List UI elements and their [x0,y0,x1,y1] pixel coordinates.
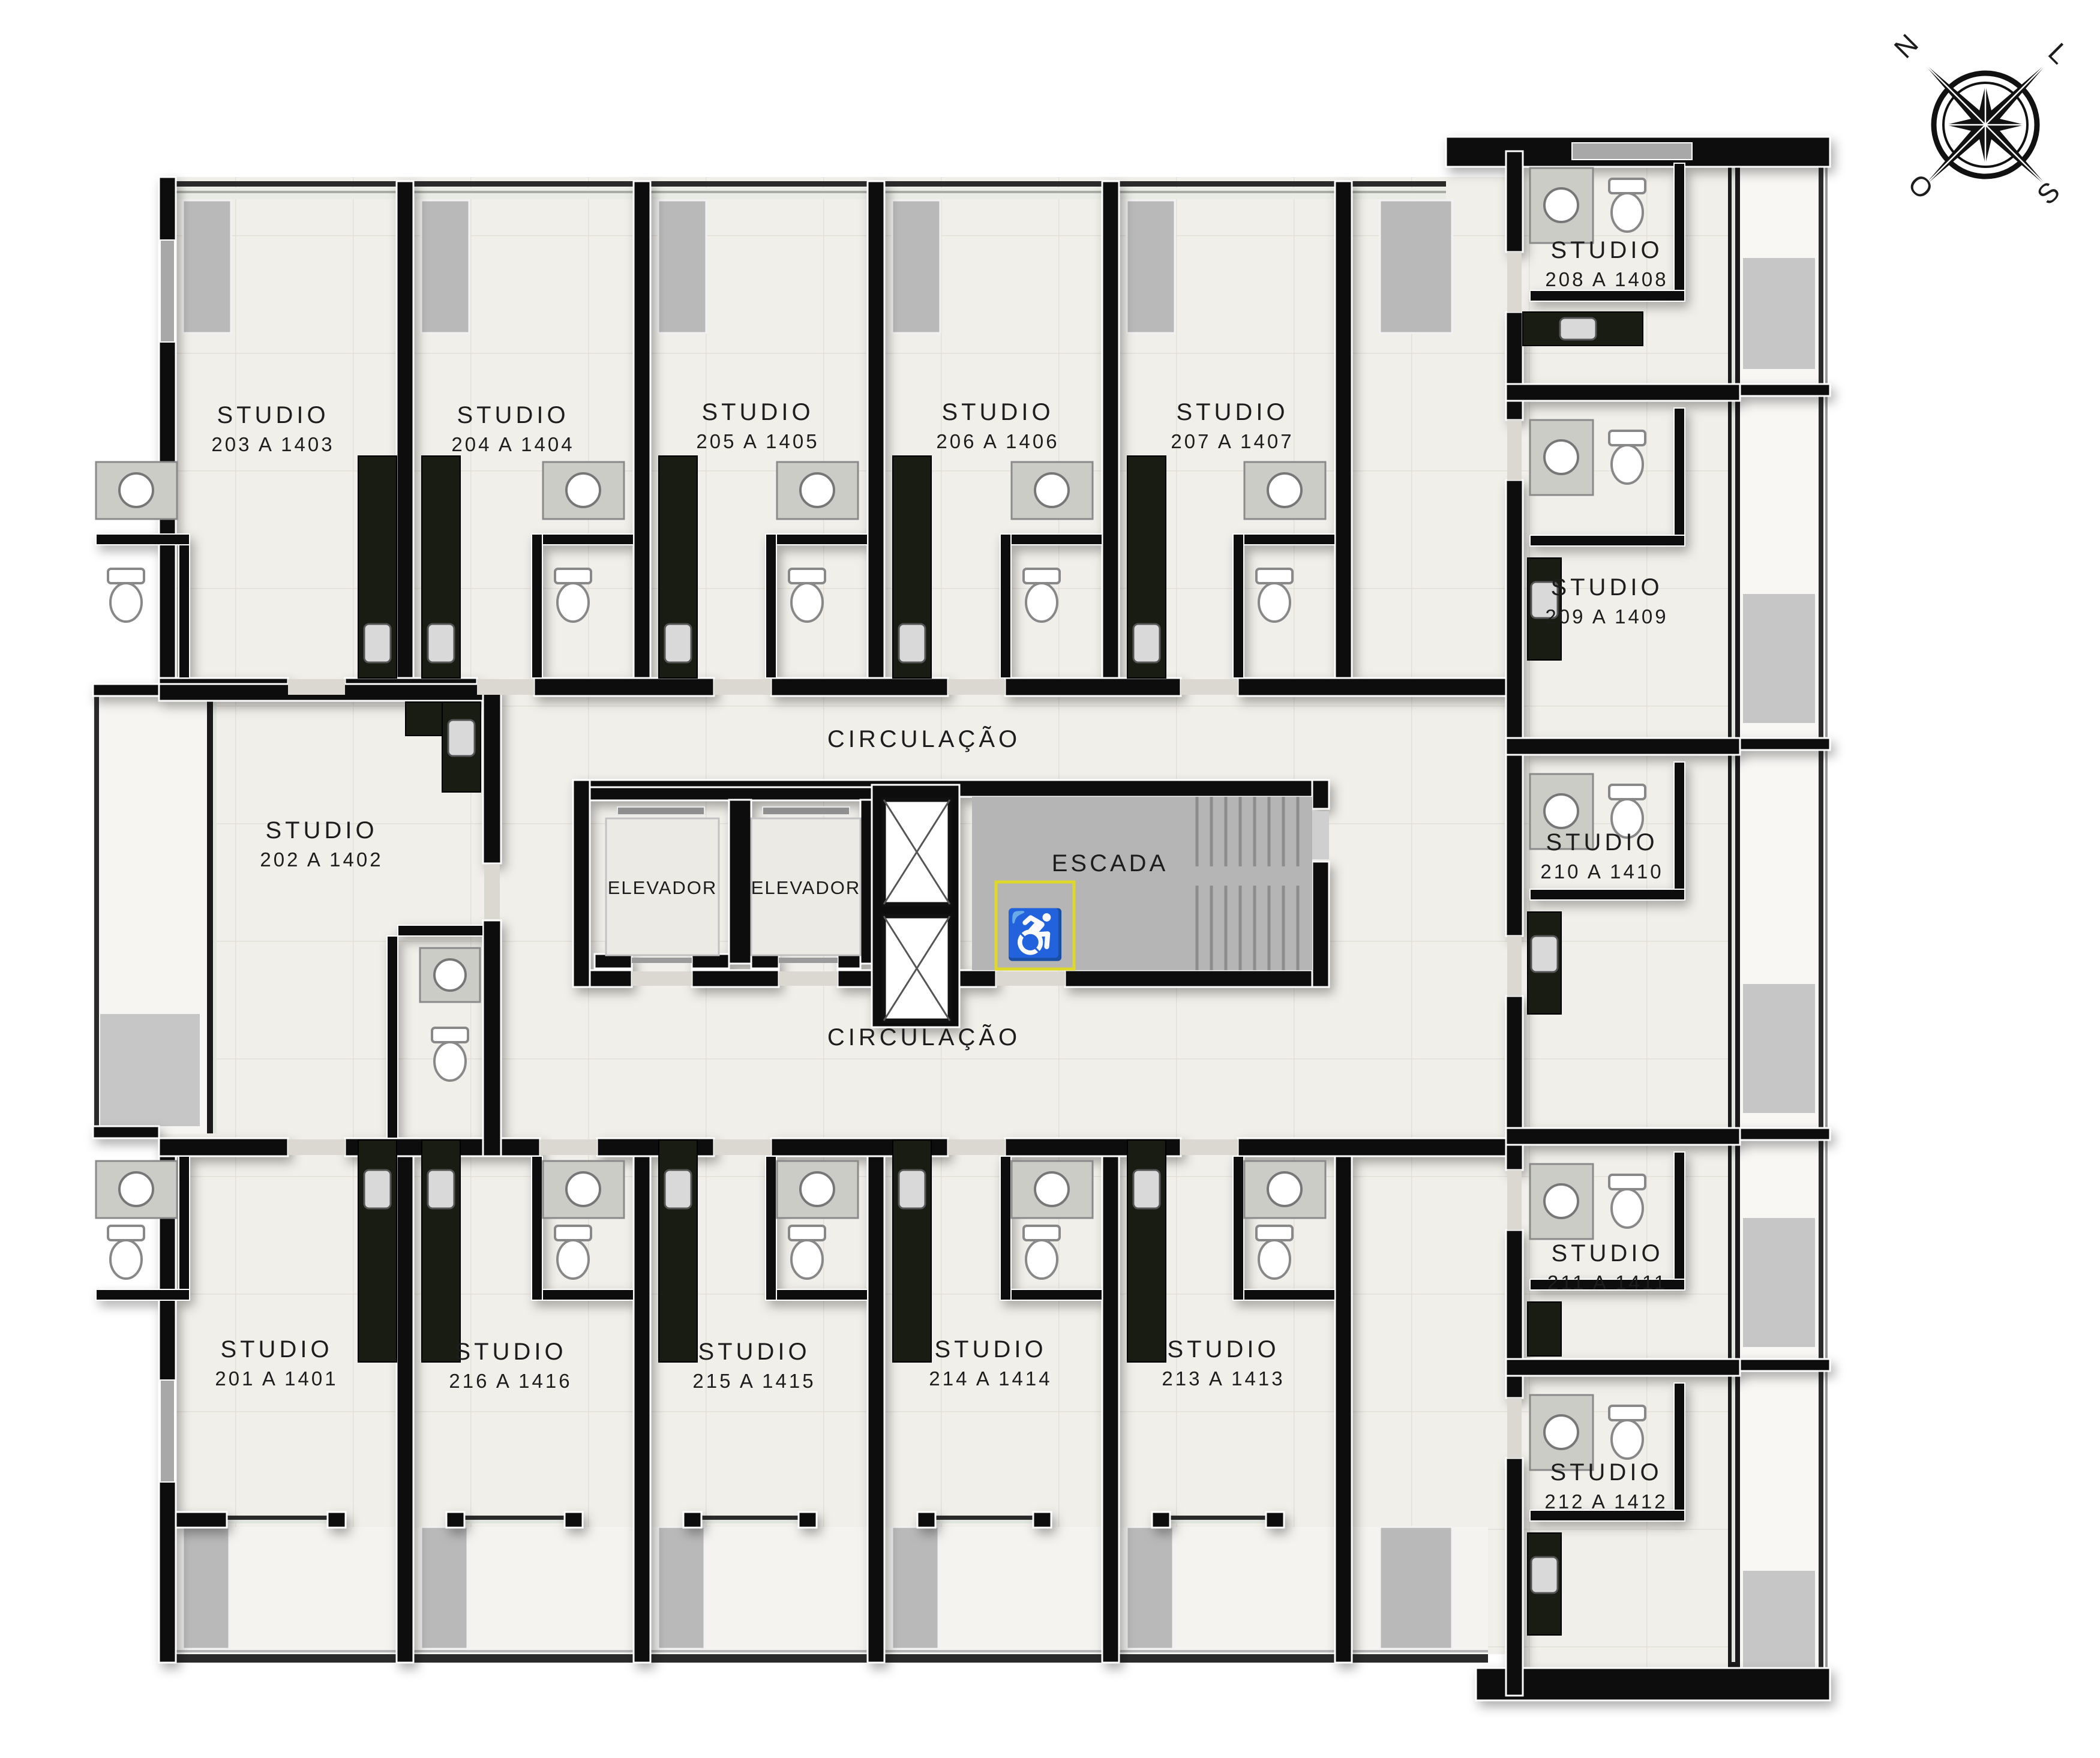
svg-text:215 A 1415: 215 A 1415 [692,1370,815,1392]
svg-text:STUDIO: STUDIO [698,1339,810,1365]
svg-text:207 A 1407: 207 A 1407 [1171,430,1294,452]
svg-text:208 A 1408: 208 A 1408 [1545,268,1668,290]
svg-text:206 A 1406: 206 A 1406 [936,430,1059,452]
svg-text:STUDIO: STUDIO [1550,574,1663,601]
circulation-label-top: CIRCULAÇÃO [827,725,1021,752]
duct-shaft-1 [884,800,950,904]
svg-text:STUDIO: STUDIO [265,817,377,844]
compass-north: N [1888,28,1924,64]
elevator-left-label: ELEVADOR [608,877,718,898]
svg-text:202 A 1402: 202 A 1402 [260,848,383,871]
svg-text:STUDIO: STUDIO [217,402,329,428]
svg-text:STUDIO: STUDIO [1176,399,1288,425]
stairwell: ♿ [972,797,1329,970]
svg-text:216 A 1416: 216 A 1416 [449,1370,572,1392]
svg-text:213 A 1413: 213 A 1413 [1162,1367,1285,1390]
svg-text:STUDIO: STUDIO [1550,237,1663,263]
svg-text:STUDIO: STUDIO [457,402,569,428]
wheelchair-icon: ♿ [1005,907,1065,962]
svg-text:STUDIO: STUDIO [934,1336,1046,1363]
circulation-label-bottom: CIRCULAÇÃO [827,1024,1021,1051]
svg-text:204 A 1404: 204 A 1404 [451,433,574,455]
svg-text:STUDIO: STUDIO [941,399,1054,425]
svg-text:205 A 1405: 205 A 1405 [696,430,819,452]
stair-door-threshold [1312,811,1329,859]
compass-south: S [2030,175,2065,210]
svg-text:STUDIO: STUDIO [1551,1240,1663,1267]
svg-text:STUDIO: STUDIO [220,1336,332,1363]
duct-shaft-2 [884,916,950,1021]
svg-text:STUDIO: STUDIO [1167,1336,1279,1363]
compass-rose: N L O S [1888,28,2075,211]
elevator-right-label: ELEVADOR [751,877,861,898]
svg-text:201 A 1401: 201 A 1401 [215,1367,338,1390]
svg-text:203 A 1403: 203 A 1403 [211,433,334,455]
svg-text:209 A 1409: 209 A 1409 [1545,605,1668,628]
svg-text:212 A 1412: 212 A 1412 [1544,1490,1667,1513]
svg-text:STUDIO: STUDIO [1550,1459,1662,1486]
stairs-label: ESCADA [1052,850,1169,877]
svg-text:STUDIO: STUDIO [454,1339,566,1365]
svg-text:STUDIO: STUDIO [701,399,814,425]
svg-text:211 A 1411: 211 A 1411 [1547,1271,1667,1294]
svg-text:210 A 1410: 210 A 1410 [1540,860,1663,883]
floor-plan-page: ♿ [0,0,2100,1758]
compass-east: L [2042,37,2075,70]
svg-text:214 A 1414: 214 A 1414 [929,1367,1052,1390]
compass-west: O [1902,168,1939,205]
svg-text:STUDIO: STUDIO [1546,829,1658,856]
floor-plan-canvas: ♿ [0,0,2100,1758]
